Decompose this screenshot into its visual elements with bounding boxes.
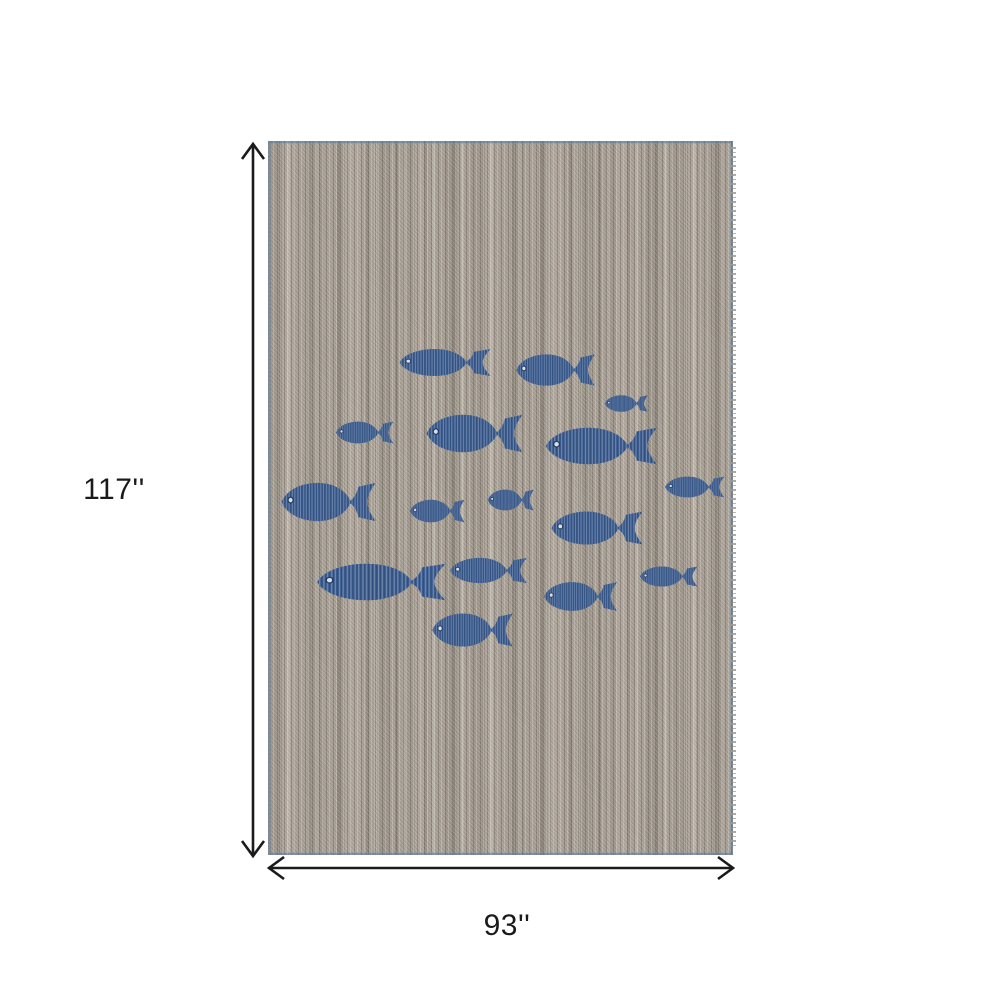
fish-motif xyxy=(335,420,395,445)
fish-motif xyxy=(639,565,699,588)
height-dimension-label: 117'' xyxy=(54,473,174,507)
fish-motif xyxy=(280,480,378,524)
fish-motif xyxy=(398,347,493,378)
product-dimension-figure: 117'' 93'' xyxy=(0,0,1000,1000)
height-dimension-arrow xyxy=(242,144,264,856)
fish-motif xyxy=(550,509,645,547)
fish-motif xyxy=(543,580,619,613)
fish-motif xyxy=(425,412,525,455)
width-dimension-arrow xyxy=(269,857,733,879)
width-dimension-label: 93'' xyxy=(447,909,567,943)
fish-motif xyxy=(604,394,649,413)
fish-motif xyxy=(487,488,535,512)
fish-motif xyxy=(449,556,529,585)
fish-motif xyxy=(315,561,449,603)
fish-motif xyxy=(431,611,515,649)
fish-motif xyxy=(515,352,597,388)
fish-layer xyxy=(270,143,731,853)
fish-motif xyxy=(664,475,726,499)
fish-motif xyxy=(544,425,660,467)
fish-motif xyxy=(409,498,466,524)
rug-image xyxy=(268,141,733,855)
